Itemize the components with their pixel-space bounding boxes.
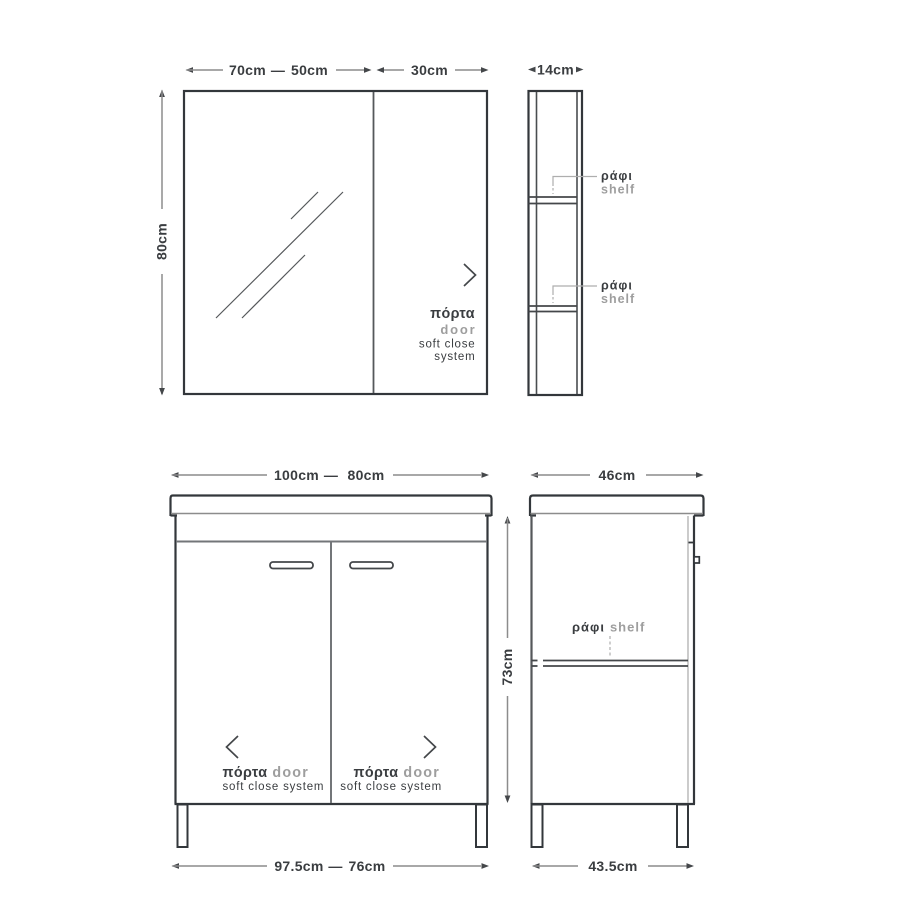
svg-text:shelf: shelf	[601, 292, 635, 306]
svg-text:shelf: shelf	[601, 183, 635, 197]
svg-text:80cm: 80cm	[154, 223, 170, 260]
svg-text:soft close system: soft close system	[340, 781, 442, 793]
svg-text:—: —	[271, 62, 285, 78]
svg-text:73cm: 73cm	[499, 648, 515, 685]
svg-text:14cm: 14cm	[537, 62, 574, 78]
svg-text:100cm: 100cm	[274, 467, 319, 483]
svg-text:76cm: 76cm	[348, 858, 385, 874]
svg-text:50cm: 50cm	[291, 62, 328, 78]
svg-text:πόρταdoor: πόρταdoor	[354, 765, 440, 781]
svg-text:door: door	[440, 322, 476, 337]
svg-text:πόρτα: πόρτα	[430, 306, 475, 322]
svg-text:43.5cm: 43.5cm	[588, 858, 637, 874]
svg-text:soft close system: soft close system	[223, 781, 325, 793]
svg-text:70cm: 70cm	[229, 62, 266, 78]
svg-text:30cm: 30cm	[411, 62, 448, 78]
svg-text:ράφι: ράφι	[601, 279, 633, 293]
svg-text:soft close: soft close	[419, 339, 476, 351]
svg-text:ράφι: ράφι	[601, 169, 633, 183]
svg-text:system: system	[434, 351, 475, 363]
svg-text:—: —	[324, 467, 338, 483]
svg-text:πόρταdoor: πόρταdoor	[223, 765, 309, 781]
svg-text:97.5cm: 97.5cm	[274, 858, 323, 874]
svg-text:80cm: 80cm	[347, 467, 384, 483]
svg-text:—: —	[328, 858, 342, 874]
svg-text:46cm: 46cm	[598, 467, 635, 483]
